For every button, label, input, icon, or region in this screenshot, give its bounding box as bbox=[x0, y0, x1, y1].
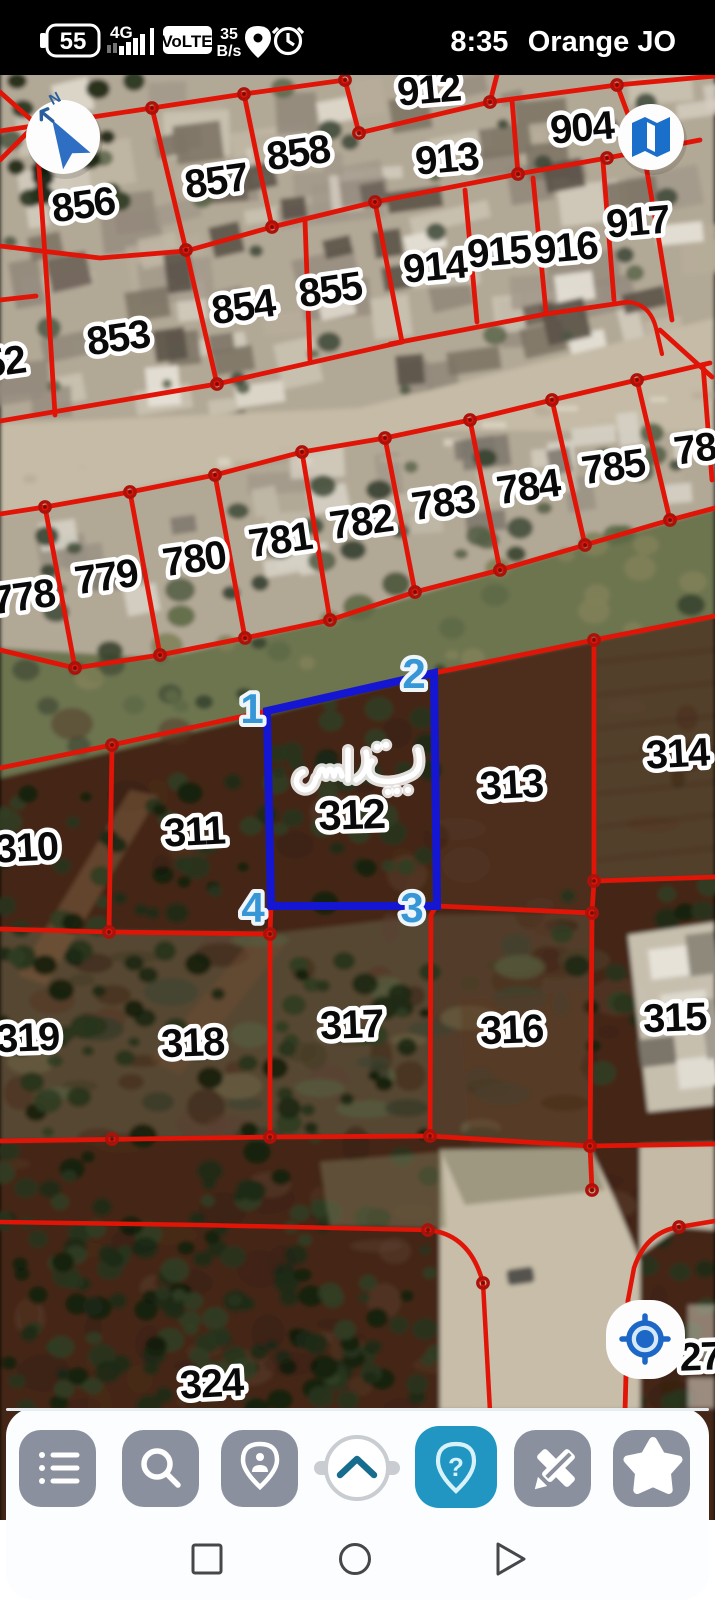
svg-text:915: 915 bbox=[465, 227, 533, 276]
svg-text:782: 782 bbox=[327, 496, 396, 548]
svg-text:913: 913 bbox=[413, 134, 480, 183]
svg-text:779: 779 bbox=[72, 551, 141, 603]
svg-text:317: 317 bbox=[319, 1002, 384, 1048]
svg-text:855: 855 bbox=[296, 264, 366, 316]
svg-text:310: 310 bbox=[0, 824, 59, 871]
svg-text:853: 853 bbox=[84, 312, 153, 364]
svg-text:2: 2 bbox=[402, 650, 425, 697]
svg-text:55: 55 bbox=[60, 28, 87, 55]
svg-text:312: 312 bbox=[317, 790, 385, 839]
svg-text:857: 857 bbox=[182, 155, 251, 207]
svg-text:854: 854 bbox=[209, 281, 280, 334]
svg-text:856: 856 bbox=[49, 179, 118, 231]
svg-text:B/s: B/s bbox=[217, 43, 242, 60]
svg-text:78: 78 bbox=[671, 424, 715, 474]
svg-text:858: 858 bbox=[264, 127, 334, 179]
svg-text:3: 3 bbox=[400, 884, 423, 931]
svg-text:785: 785 bbox=[579, 441, 649, 493]
svg-text:314: 314 bbox=[645, 730, 712, 777]
svg-text:914: 914 bbox=[401, 242, 470, 292]
svg-text:781: 781 bbox=[246, 514, 316, 566]
svg-text:318: 318 bbox=[160, 1020, 226, 1066]
svg-text:916: 916 bbox=[532, 223, 599, 272]
svg-text:1: 1 bbox=[240, 685, 263, 732]
svg-text:324: 324 bbox=[179, 1360, 246, 1407]
svg-text:VoLTE: VoLTE bbox=[161, 32, 212, 51]
svg-text:780: 780 bbox=[160, 533, 229, 585]
svg-text:?: ? bbox=[448, 1452, 464, 1482]
svg-text:8:35 Orange JO: 8:35 Orange JO bbox=[450, 26, 676, 58]
svg-text:783: 783 bbox=[409, 477, 478, 529]
svg-text:778: 778 bbox=[0, 571, 58, 623]
svg-text:4G: 4G bbox=[110, 23, 133, 42]
svg-text:316: 316 bbox=[479, 1007, 544, 1053]
svg-text:4: 4 bbox=[241, 884, 265, 931]
svg-text:313: 313 bbox=[479, 761, 544, 808]
svg-text:315: 315 bbox=[642, 995, 708, 1041]
svg-text:319: 319 bbox=[0, 1015, 60, 1061]
svg-text:35: 35 bbox=[220, 26, 238, 43]
svg-text:917: 917 bbox=[604, 197, 671, 246]
svg-text:904: 904 bbox=[548, 103, 617, 153]
svg-text:311: 311 bbox=[163, 808, 227, 855]
svg-text:784: 784 bbox=[494, 461, 565, 514]
